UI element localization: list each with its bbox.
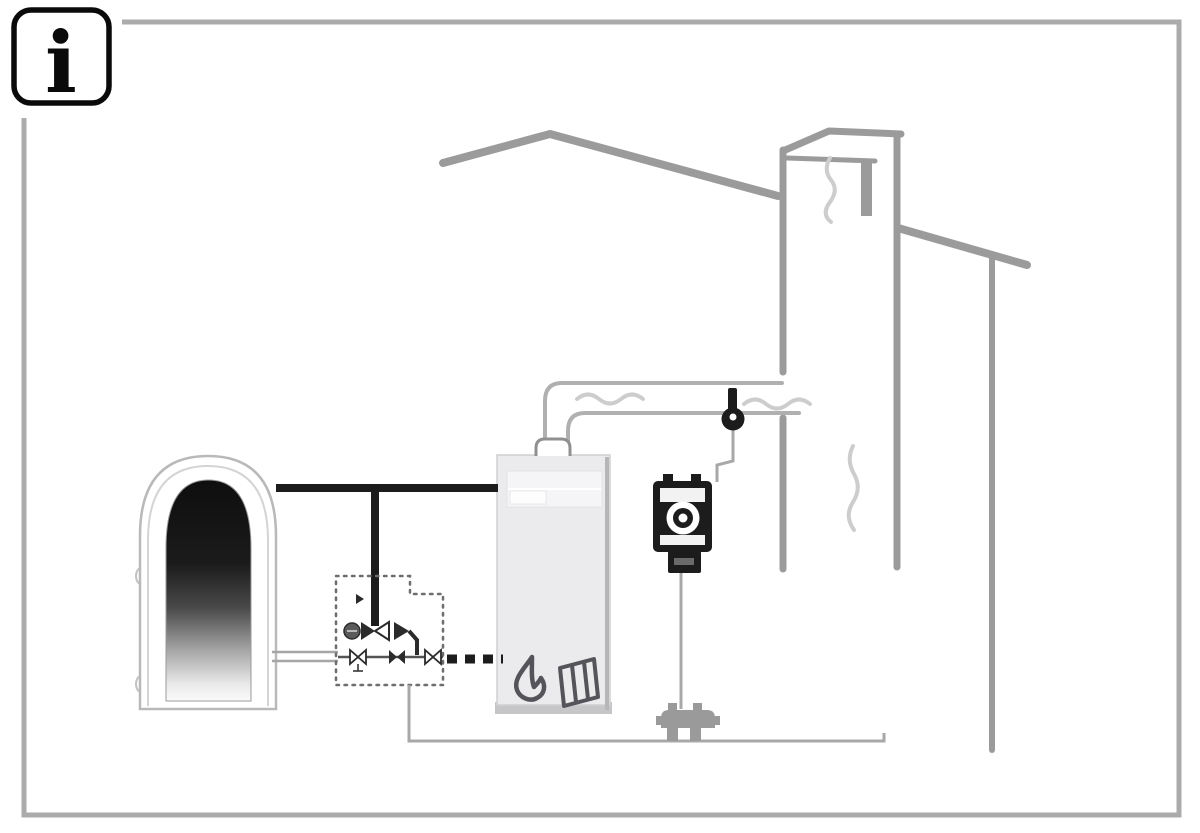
shutoff-valve-2-right — [433, 650, 441, 664]
info-icon: i — [45, 13, 77, 112]
draft-fan — [653, 474, 712, 709]
chimney — [783, 131, 901, 569]
boiler-display — [510, 491, 546, 504]
manual-illustration-page: i — [0, 0, 1200, 833]
flue-duct-bottom-line — [568, 413, 799, 456]
sensor-bulb-dot — [730, 414, 737, 421]
flue-duct-insulation-wave-1 — [577, 395, 643, 404]
check-valve-right — [397, 650, 405, 664]
smoke-wave-upper — [826, 158, 835, 222]
flue-gas-sensor — [717, 388, 745, 482]
shutoff-valve-1 — [350, 650, 366, 664]
valve-outlet-connector — [409, 631, 417, 655]
plug-bump-right — [693, 703, 702, 711]
fan-rotor-hub — [679, 514, 688, 523]
flue-duct — [545, 383, 810, 456]
storage-tank — [136, 456, 276, 709]
check-valve-left — [389, 650, 397, 664]
plug-ear-left — [656, 716, 662, 725]
power-plug — [656, 703, 720, 741]
plug-prong-right — [690, 728, 701, 741]
info-badge: i — [14, 10, 109, 112]
check-valve — [389, 650, 405, 664]
mixing-valve-outlet-port — [394, 622, 409, 640]
drain-stub — [353, 664, 363, 671]
roof-ridge-line — [443, 134, 778, 196]
tank-water-gradient — [166, 480, 251, 701]
plug-bump-left — [668, 703, 677, 711]
sensor-wire — [717, 430, 733, 482]
flue-duct-top-line — [545, 383, 782, 456]
chimney-flue-liner — [861, 161, 872, 216]
plug-prong-left — [667, 728, 678, 741]
roof-eave-line — [898, 228, 1027, 265]
ground-wire — [409, 685, 884, 741]
flue-duct-insulation-wave-2 — [744, 400, 810, 409]
valve-group — [336, 576, 443, 685]
shutoff-valve-2 — [425, 650, 441, 664]
smoke-wave-lower — [849, 446, 858, 530]
shutoff-valve-1-right — [358, 650, 366, 664]
boiler-flue-collar — [536, 439, 570, 456]
diagram-canvas: i — [0, 0, 1200, 833]
plug-ear-right — [714, 716, 720, 725]
plug-body — [661, 710, 715, 728]
fan-junction-label — [674, 558, 694, 565]
boiler — [495, 439, 612, 714]
flow-direction-marker — [356, 594, 364, 604]
chimney-rim-back — [783, 131, 901, 151]
